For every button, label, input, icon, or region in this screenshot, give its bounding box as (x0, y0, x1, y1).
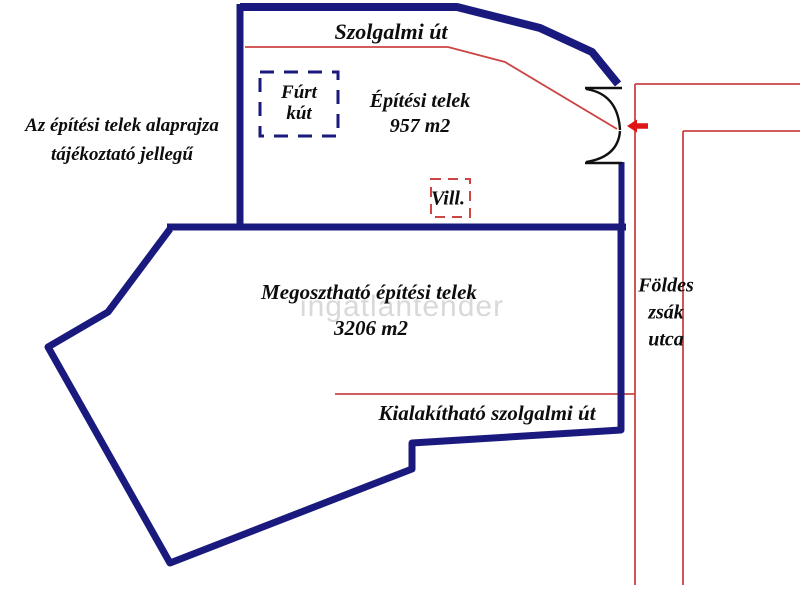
bottom-road-label: Kialakítható szolgalmi út (378, 396, 595, 430)
street-label-line3: utca (638, 327, 694, 354)
street-label: Földes zsák utca (638, 273, 694, 354)
upper-plot-area: 957 m2 (370, 114, 471, 139)
plan-note-line1: Az építési telek alaprajza (25, 111, 219, 140)
upper-plot-label: Építési telek 957 m2 (370, 89, 471, 139)
well-label: Fúrt kút (281, 82, 317, 124)
street-label-line1: Földes (638, 273, 694, 300)
electricity-label: Vill. (431, 188, 465, 211)
plan-note: Az építési telek alaprajza tájékoztató j… (25, 111, 219, 169)
well-label-line2: kút (281, 103, 317, 124)
lower-plot-name: Megosztható építési telek (261, 275, 477, 309)
top-road-label: Szolgalmi út (334, 19, 447, 45)
plan-note-line2: tájékoztató jellegű (25, 140, 219, 169)
entrance-arrow-left-icon (627, 120, 648, 133)
upper-plot-name: Építési telek (370, 89, 471, 114)
gate-symbol-icon (585, 88, 622, 163)
lower-plot-area: 3206 m2 (334, 311, 408, 345)
street-label-line2: zsák (638, 300, 694, 327)
site-plan: ingatlantender Az építési telek alaprajz… (0, 0, 800, 600)
well-label-line1: Fúrt (281, 82, 317, 103)
